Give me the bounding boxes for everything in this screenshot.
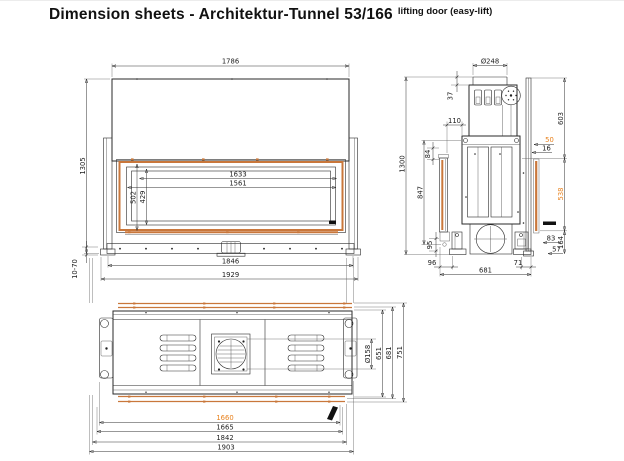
left-leg (104, 138, 113, 249)
plan-dim-duct-diameter: Ø158 (364, 345, 372, 363)
plan-dim-opening-width: 1665 (216, 423, 233, 431)
hood-outline (112, 79, 349, 161)
side-dim-base-height: 164 (557, 236, 565, 249)
plan-dim-body-depth: 681 (385, 347, 393, 360)
side-dim-flue-diameter: Ø248 (481, 57, 499, 65)
front-dim-glass-width: 1561 (229, 179, 246, 187)
front-dim-overall-width: 1929 (222, 271, 239, 279)
plan-body (113, 311, 352, 394)
plan-dim-glass-width: 1660 (216, 414, 233, 422)
side-dim-top-guide: 110 (448, 117, 461, 125)
front-dim-opening-height: 502 (130, 191, 138, 204)
base-band (107, 244, 354, 254)
side-dim-frame-gap: 16 (542, 145, 551, 153)
louver-slots (160, 335, 324, 371)
side-dim-lower-glass-edge: 95 (426, 241, 434, 250)
right-end-cap (344, 318, 358, 379)
side-dim-flue-offset: 37 (447, 92, 455, 101)
logo-plate (329, 221, 336, 225)
side-dim-door-glass-height: 538 (557, 188, 565, 201)
plan-dim-inner-depth: 651 (375, 347, 383, 360)
side-front-foot (452, 232, 462, 249)
drawing-canvas: 1786 1305 1633 1561 502 429 1846 1929 10… (0, 1, 624, 461)
right-foot (346, 249, 361, 255)
plan-view: Ø158 651 681 751 1660 1665 1842 1903 (90, 258, 408, 455)
door-guide-rail (440, 158, 448, 232)
front-dim-glass-height: 429 (139, 191, 147, 204)
side-view: Ø248 37 110 847 84 95 1300 (399, 57, 568, 276)
plan-dim-overall-depth: 751 (396, 346, 404, 359)
side-dim-door-lift-height: 847 (417, 186, 425, 199)
dimension-sheet: Dimension sheets - Architektur-Tunnel 53… (0, 0, 624, 461)
section-mark (327, 406, 338, 421)
handle (543, 222, 556, 226)
side-dim-depth: 681 (479, 266, 492, 274)
left-foot (101, 249, 116, 255)
side-dim-base-step-1: 83 (547, 234, 556, 242)
right-leg (349, 138, 358, 249)
left-end-cap (100, 318, 114, 379)
side-dim-rear-clearance: 71 (514, 259, 523, 267)
front-dim-height: 1305 (79, 157, 87, 174)
side-dim-upper-section: 603 (557, 112, 565, 125)
front-dim-opening-width: 1633 (229, 170, 246, 178)
front-dim-body-width: 1846 (222, 257, 239, 265)
front-dim-top-width: 1786 (222, 58, 239, 66)
plan-dim-overall-width: 1903 (217, 443, 234, 451)
side-dim-lift-gap: 50 (545, 136, 554, 144)
front-view: 1786 1305 1633 1561 502 429 1846 1929 10… (71, 58, 361, 282)
side-dim-front-clearance: 96 (428, 259, 437, 267)
hoist-box (469, 85, 517, 136)
side-dim-overall-height: 1300 (399, 155, 407, 172)
plan-dim-body-width: 1842 (216, 434, 233, 442)
side-dim-upper-glass-edge: 84 (424, 150, 432, 159)
front-dim-foot-adjust: 10-70 (71, 259, 79, 279)
